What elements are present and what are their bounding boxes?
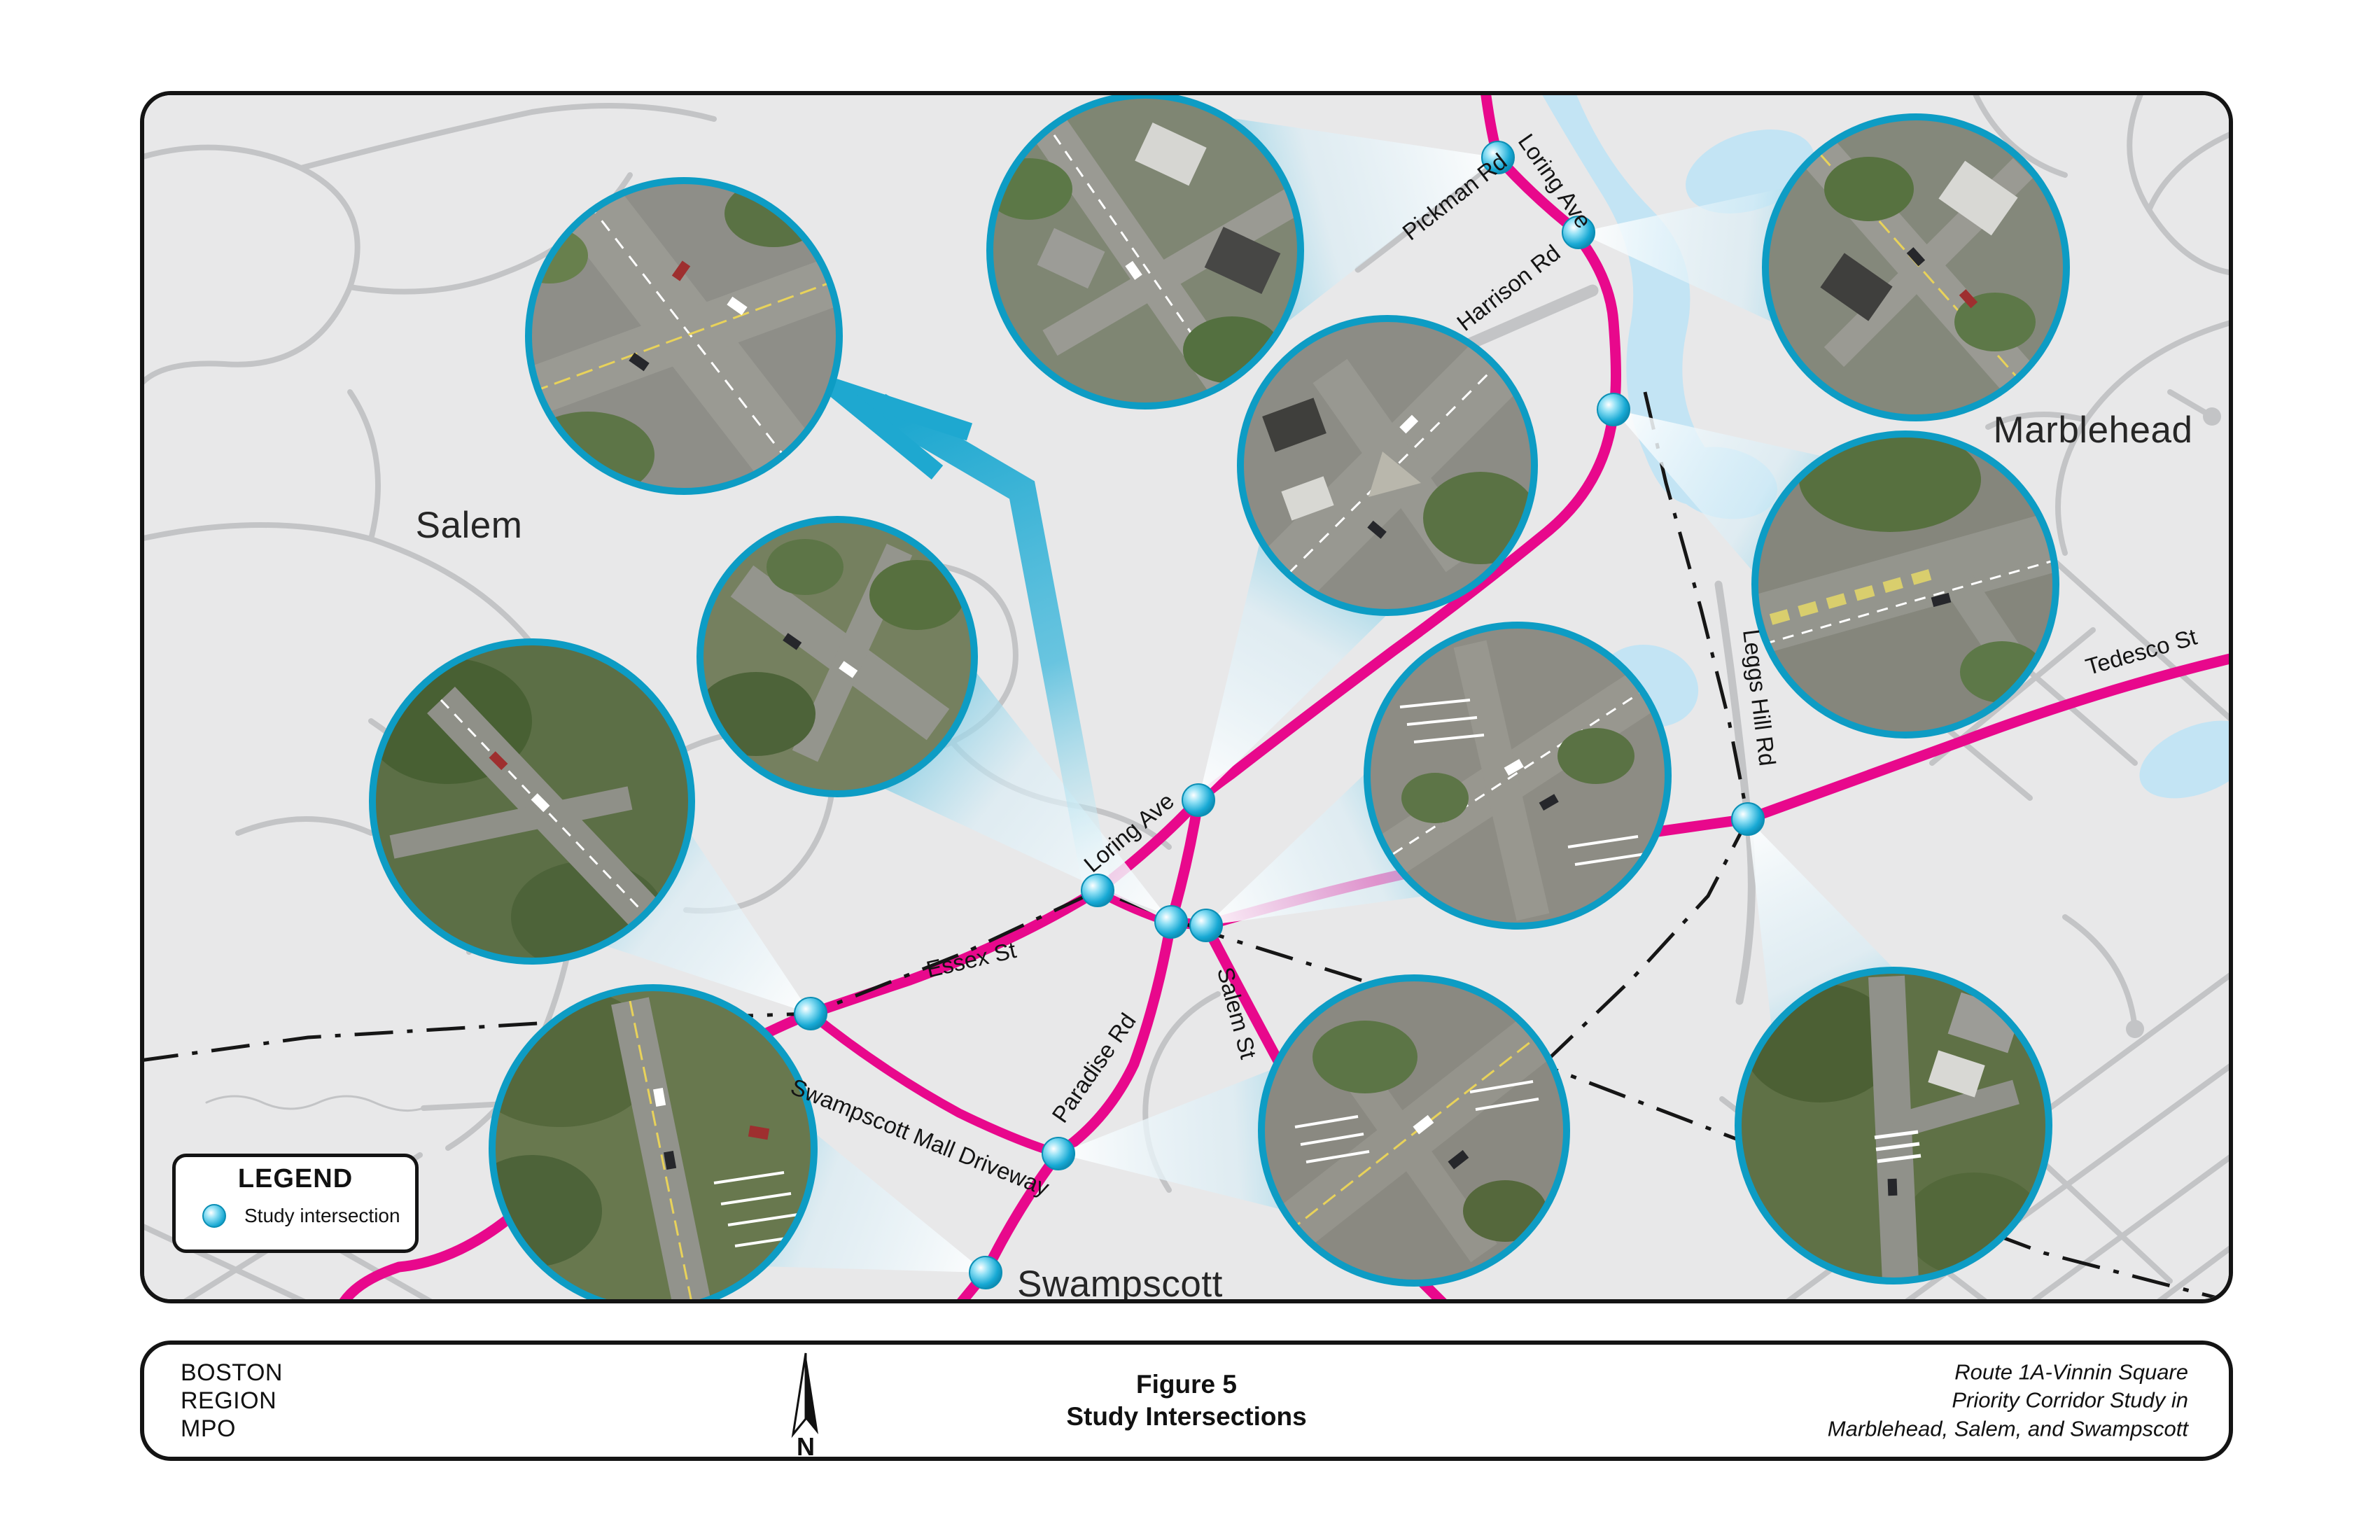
agency-line: REGION	[181, 1387, 283, 1415]
project-line: Marblehead, Salem, and Swampscott	[1828, 1415, 2188, 1443]
agency-line: BOSTON	[181, 1359, 283, 1387]
study-dot	[1597, 393, 1630, 426]
study-dot	[1182, 784, 1214, 816]
town-label-salem: Salem	[416, 505, 523, 546]
legend: LEGEND Study intersection	[172, 1154, 419, 1253]
title-bar: BOSTON REGION MPO N Figure 5 Study Inter…	[140, 1340, 2233, 1461]
figure-page: Pickman Rd Loring Ave Harrison Rd Loring…	[0, 0, 2380, 1540]
project-line: Route 1A-Vinnin Square	[1828, 1359, 2188, 1387]
figure-number: Figure 5	[1066, 1368, 1306, 1401]
study-dot	[1155, 906, 1187, 938]
project-title: Route 1A-Vinnin Square Priority Corridor…	[1828, 1359, 2188, 1443]
study-dot	[1732, 803, 1764, 835]
agency-name: BOSTON REGION MPO	[181, 1359, 283, 1443]
figure-title: Figure 5 Study Intersections	[1066, 1368, 1306, 1434]
legend-item: Study intersection	[202, 1204, 415, 1228]
study-dot	[1081, 874, 1114, 906]
study-dot	[1042, 1137, 1074, 1170]
map-graphics: Pickman Rd Loring Ave Harrison Rd Loring…	[140, 91, 2233, 1303]
figure-subtitle: Study Intersections	[1066, 1401, 1306, 1433]
project-line: Priority Corridor Study in	[1828, 1387, 2188, 1415]
town-label-swampscott: Swampscott	[1017, 1263, 1223, 1303]
town-label-marblehead: Marblehead	[1994, 409, 2193, 451]
agency-line: MPO	[181, 1415, 283, 1443]
legend-item-label: Study intersection	[244, 1205, 400, 1227]
study-dot	[1190, 909, 1222, 941]
north-label: N	[797, 1432, 815, 1461]
legend-title: LEGEND	[176, 1164, 415, 1194]
study-intersection-icon	[202, 1204, 226, 1228]
study-dot	[794, 997, 827, 1030]
map-canvas: Pickman Rd Loring Ave Harrison Rd Loring…	[140, 91, 2233, 1303]
study-dot	[969, 1256, 1002, 1289]
north-arrow-icon: N	[785, 1349, 827, 1461]
